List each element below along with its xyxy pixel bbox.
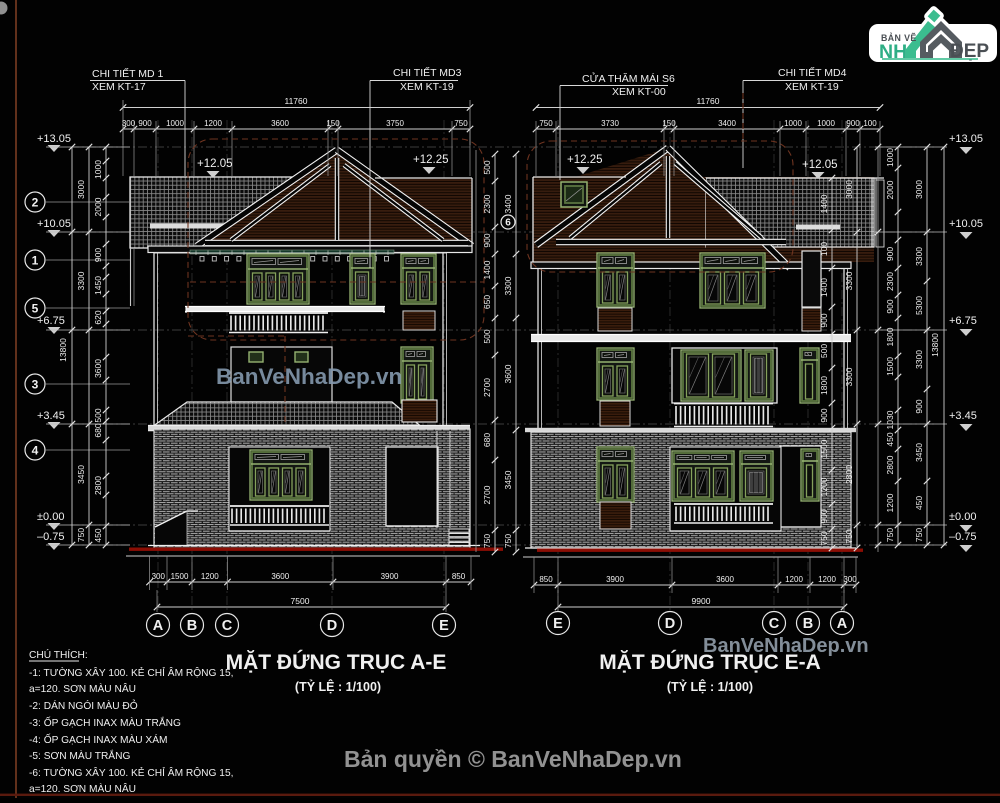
svg-text:D: D	[327, 618, 337, 634]
svg-text:750: 750	[76, 528, 86, 542]
svg-text:CHI TIẾT MD 1: CHI TIẾT MD 1	[92, 67, 164, 80]
svg-text:1500: 1500	[819, 439, 829, 458]
svg-text:1500: 1500	[171, 572, 189, 581]
svg-text:4: 4	[32, 443, 39, 457]
svg-text:XEM KT-19: XEM KT-19	[785, 81, 839, 93]
svg-text:+13.05: +13.05	[37, 133, 71, 145]
svg-text:680: 680	[482, 433, 492, 447]
svg-text:3000: 3000	[914, 180, 924, 199]
svg-text:3730: 3730	[601, 119, 619, 128]
svg-text:3400: 3400	[718, 119, 736, 128]
svg-text:Bản quyền © BanVeNhaDep.vn: Bản quyền © BanVeNhaDep.vn	[344, 746, 682, 772]
svg-text:2000: 2000	[885, 180, 895, 199]
svg-text:1450: 1450	[93, 276, 103, 295]
svg-text:450: 450	[885, 432, 895, 446]
svg-text:–0.75: –0.75	[949, 531, 977, 543]
svg-text:1000: 1000	[166, 119, 184, 128]
svg-text:1: 1	[32, 253, 39, 267]
svg-text:(TỶ LỆ : 1/100): (TỶ LỆ : 1/100)	[667, 679, 753, 694]
svg-text:C: C	[222, 618, 233, 634]
svg-text:1000: 1000	[885, 148, 895, 167]
svg-text:XEM KT-00: XEM KT-00	[612, 86, 666, 98]
svg-text:1200: 1200	[819, 477, 829, 496]
svg-text:900: 900	[819, 509, 829, 523]
svg-text:3600: 3600	[716, 575, 734, 584]
svg-text:750: 750	[914, 528, 924, 542]
svg-text:650: 650	[482, 295, 492, 309]
svg-text:+12.05: +12.05	[802, 159, 838, 171]
svg-text:2300: 2300	[482, 194, 492, 213]
svg-text:±0.00: ±0.00	[949, 511, 976, 523]
svg-text:-1: TƯỜNG XÂY 100. KẺ CHỈ ÂM: -1: TƯỜNG XÂY 100. KẺ CHỈ ÂM RỘNG 15,	[29, 666, 233, 679]
svg-text:3450: 3450	[914, 443, 924, 462]
svg-text:1200: 1200	[204, 119, 222, 128]
svg-text:300: 300	[122, 119, 136, 128]
svg-text:-2: DÁN NGÓI MÀU ĐỎ: -2: DÁN NGÓI MÀU ĐỎ	[29, 699, 138, 712]
svg-text:a=120. SƠN MÀU NÂU: a=120. SƠN MÀU NÂU	[29, 682, 136, 695]
svg-text:750: 750	[503, 534, 513, 548]
svg-text:500: 500	[482, 160, 492, 174]
svg-text:-4: ỐP GẠCH INAX MÀU XÁM: -4: ỐP GẠCH INAX MÀU XÁM	[29, 732, 168, 746]
svg-text:CHI TIẾT MD3: CHI TIẾT MD3	[393, 66, 462, 79]
svg-text:A: A	[153, 618, 164, 634]
svg-text:3450: 3450	[503, 470, 513, 489]
svg-text:1200: 1200	[885, 493, 895, 512]
svg-text:3: 3	[32, 377, 39, 391]
svg-text:3000: 3000	[76, 180, 86, 199]
svg-text:B: B	[187, 618, 197, 634]
svg-text:+10.05: +10.05	[949, 218, 983, 230]
svg-text:2300: 2300	[885, 272, 895, 291]
svg-text:1400: 1400	[819, 194, 829, 213]
svg-text:±0.00: ±0.00	[37, 511, 64, 523]
svg-text:3000: 3000	[844, 180, 854, 199]
svg-text:900: 900	[93, 248, 103, 262]
svg-text:3300: 3300	[914, 247, 924, 266]
svg-text:+3.45: +3.45	[37, 410, 65, 422]
svg-text:900: 900	[914, 399, 924, 413]
svg-text:13800: 13800	[930, 333, 940, 357]
svg-text:3600: 3600	[93, 359, 103, 378]
svg-text:3300: 3300	[76, 271, 86, 290]
svg-text:150: 150	[326, 119, 340, 128]
svg-text:+13.05: +13.05	[949, 133, 983, 145]
svg-text:1500: 1500	[885, 357, 895, 376]
svg-text:750: 750	[844, 529, 854, 543]
svg-text:-6: TƯỜNG XÂY 100. KẺ CHỈ ÂM: -6: TƯỜNG XÂY 100. KẺ CHỈ ÂM RỘNG 15,	[29, 766, 233, 779]
svg-text:3300: 3300	[503, 276, 513, 295]
svg-text:a=120. SƠN MÀU NÂU: a=120. SƠN MÀU NÂU	[29, 782, 136, 795]
svg-text:6: 6	[505, 218, 511, 229]
svg-text:BanVeNhaDep.vn: BanVeNhaDep.vn	[703, 635, 869, 657]
svg-text:500: 500	[482, 329, 492, 343]
svg-text:1400: 1400	[819, 278, 829, 297]
svg-text:1800: 1800	[885, 327, 895, 346]
svg-text:750: 750	[885, 528, 895, 542]
svg-text:900: 900	[819, 408, 829, 422]
svg-text:300: 300	[152, 572, 166, 581]
svg-text:850: 850	[539, 575, 553, 584]
svg-text:CHÚ THÍCH:: CHÚ THÍCH:	[29, 648, 88, 661]
svg-text:3400: 3400	[503, 194, 513, 213]
svg-text:9900: 9900	[692, 596, 711, 606]
svg-text:+6.75: +6.75	[37, 315, 65, 327]
svg-text:2: 2	[32, 195, 39, 209]
svg-text:3750: 3750	[386, 119, 404, 128]
svg-text:3600: 3600	[271, 572, 289, 581]
svg-text:MẶT ĐỨNG TRỤC A-E: MẶT ĐỨNG TRỤC A-E	[226, 650, 447, 674]
svg-text:100: 100	[819, 242, 829, 256]
svg-text:900: 900	[482, 233, 492, 247]
svg-text:100: 100	[863, 119, 877, 128]
svg-text:C: C	[769, 616, 780, 632]
svg-text:1030: 1030	[885, 410, 895, 429]
svg-text:+10.05: +10.05	[37, 218, 71, 230]
svg-text:+3.45: +3.45	[949, 410, 977, 422]
svg-text:(TỶ LỆ : 1/100): (TỶ LỆ : 1/100)	[295, 679, 381, 694]
svg-text:2700: 2700	[482, 378, 492, 397]
svg-text:900: 900	[138, 119, 152, 128]
svg-text:D: D	[665, 616, 675, 632]
svg-text:1200: 1200	[818, 575, 836, 584]
svg-text:1000: 1000	[817, 119, 835, 128]
svg-text:680: 680	[93, 423, 103, 437]
svg-text:-5: SƠN MÀU TRẮNG: -5: SƠN MÀU TRẮNG	[29, 749, 130, 762]
svg-text:450: 450	[93, 528, 103, 542]
svg-text:300: 300	[843, 575, 857, 584]
svg-text:2700: 2700	[482, 485, 492, 504]
svg-text:900: 900	[885, 299, 895, 313]
svg-text:3900: 3900	[606, 575, 624, 584]
svg-text:2800: 2800	[885, 455, 895, 474]
svg-text:E: E	[439, 618, 449, 634]
svg-text:750: 750	[482, 534, 492, 548]
svg-text:+12.05: +12.05	[197, 158, 233, 170]
svg-text:E: E	[553, 616, 563, 632]
svg-text:7500: 7500	[291, 596, 310, 606]
svg-text:750: 750	[819, 531, 829, 545]
svg-text:B: B	[803, 616, 813, 632]
svg-text:1000: 1000	[784, 119, 802, 128]
svg-text:900: 900	[885, 247, 895, 261]
svg-text:2800: 2800	[93, 476, 103, 495]
svg-text:3300: 3300	[914, 350, 924, 369]
svg-text:3600: 3600	[271, 119, 289, 128]
svg-text:750: 750	[539, 119, 553, 128]
svg-text:3900: 3900	[381, 572, 399, 581]
svg-text:+12.25: +12.25	[413, 154, 449, 166]
svg-text:13800: 13800	[58, 338, 68, 362]
svg-text:850: 850	[452, 572, 466, 581]
svg-text:500: 500	[819, 344, 829, 358]
svg-text:11760: 11760	[284, 96, 307, 106]
svg-text:BanVeNhaDep.vn: BanVeNhaDep.vn	[216, 364, 402, 389]
svg-text:XEM KT-17: XEM KT-17	[92, 81, 146, 93]
svg-text:2000: 2000	[93, 197, 103, 216]
svg-text:5: 5	[32, 301, 39, 315]
svg-text:11760: 11760	[696, 96, 719, 106]
svg-text:CỬA THĂM MÁI S6: CỬA THĂM MÁI S6	[582, 72, 675, 85]
svg-text:XEM KT-19: XEM KT-19	[400, 81, 454, 93]
svg-text:1000: 1000	[93, 160, 103, 179]
svg-text:3450: 3450	[76, 465, 86, 484]
svg-text:3300: 3300	[844, 271, 854, 290]
svg-text:620: 620	[93, 310, 103, 324]
svg-text:2800: 2800	[844, 465, 854, 484]
svg-text:900: 900	[819, 313, 829, 327]
svg-text:+6.75: +6.75	[949, 315, 977, 327]
svg-text:3300: 3300	[844, 367, 854, 386]
svg-text:A: A	[837, 616, 848, 632]
svg-text:5300: 5300	[914, 296, 924, 315]
svg-text:1200: 1200	[201, 572, 219, 581]
svg-text:450: 450	[914, 496, 924, 510]
svg-text:3600: 3600	[503, 364, 513, 383]
svg-text:1400: 1400	[482, 260, 492, 279]
svg-text:+12.25: +12.25	[567, 154, 603, 166]
svg-text:750: 750	[454, 119, 468, 128]
svg-text:1800: 1800	[819, 376, 829, 395]
svg-text:CHI TIẾT MD4: CHI TIẾT MD4	[778, 66, 847, 79]
svg-text:1200: 1200	[785, 575, 803, 584]
svg-text:150: 150	[662, 119, 676, 128]
svg-text:500: 500	[93, 408, 103, 422]
svg-text:-3: ỐP GẠCH INAX MÀU TRẮNG: -3: ỐP GẠCH INAX MÀU TRẮNG	[29, 715, 181, 729]
svg-text:–0.75: –0.75	[37, 531, 65, 543]
svg-text:900: 900	[846, 119, 860, 128]
